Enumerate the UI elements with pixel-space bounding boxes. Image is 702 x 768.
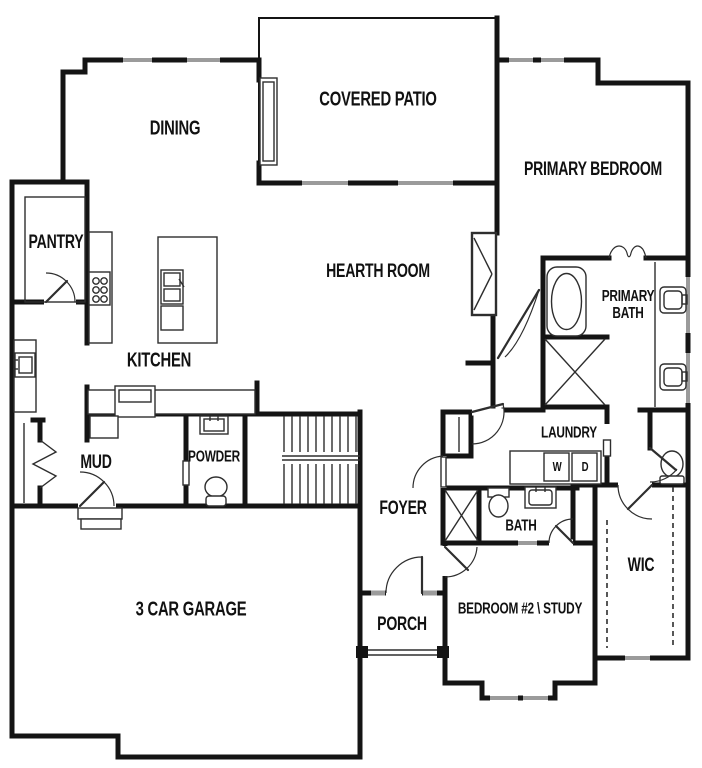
- mud-bench: [90, 416, 118, 438]
- room-label-laundry: LAUNDRY: [541, 426, 597, 443]
- room-label-pantry: PANTRY: [29, 233, 84, 253]
- room-label-kitchen: KITCHEN: [127, 351, 191, 372]
- hearth-fireplace-icon: [472, 233, 496, 315]
- room-label-covered-patio: COVERED PATIO: [319, 90, 436, 111]
- primary-bath-fixtures: [545, 262, 687, 407]
- wic-fixtures: [607, 451, 684, 648]
- floor-plan: COVERED PATIO DINING PRIMARY BEDROOM PAN…: [0, 0, 702, 768]
- room-label-garage: 3 CAR GARAGE: [136, 600, 247, 621]
- room-label-hearth-room: HEARTH ROOM: [326, 262, 430, 282]
- room-label-mud: MUD: [80, 453, 111, 473]
- washer-label: W: [553, 460, 562, 474]
- garage-door: [80, 482, 104, 506]
- bath2-fixtures: [488, 487, 556, 517]
- archway: [609, 246, 646, 258]
- room-label-dining: DINING: [150, 119, 200, 140]
- room-label-powder: POWDER: [188, 450, 240, 467]
- porch-post: [356, 646, 368, 658]
- bifold-closet-door: [33, 440, 56, 488]
- powder-toilet-icon: [205, 477, 227, 497]
- room-label-primary-bedroom: PRIMARY BEDROOM: [524, 160, 662, 180]
- room-label-bedroom2: BEDROOM #2 \ STUDY: [458, 602, 582, 619]
- hall-door: [441, 457, 446, 487]
- room-label-bath: BATH: [505, 519, 536, 536]
- garage-step: [78, 508, 122, 519]
- walls: [12, 18, 688, 757]
- laundry-hall-door: [604, 440, 611, 456]
- floor-plan-drawing: [0, 0, 702, 768]
- tub-icon: [547, 267, 586, 336]
- staircase: [282, 416, 360, 504]
- wic-door: [628, 485, 652, 509]
- toilet-closet-toilet-icon: [661, 451, 683, 477]
- room-label-foyer: FOYER: [379, 499, 426, 519]
- garage-step: [81, 519, 121, 529]
- island-dishwasher: [161, 306, 183, 330]
- room-label-primary-bath: PRIMARY BATH: [596, 289, 660, 323]
- primary-suite-door: [498, 290, 539, 358]
- porch-elements: [356, 646, 449, 658]
- room-label-porch: PORCH: [377, 615, 427, 635]
- porch-post: [437, 646, 449, 658]
- dryer-label: D: [582, 460, 589, 474]
- kitchen-fixtures: [88, 232, 255, 417]
- kitchen-counter-south: [88, 390, 255, 414]
- room-label-wic: WIC: [628, 556, 655, 576]
